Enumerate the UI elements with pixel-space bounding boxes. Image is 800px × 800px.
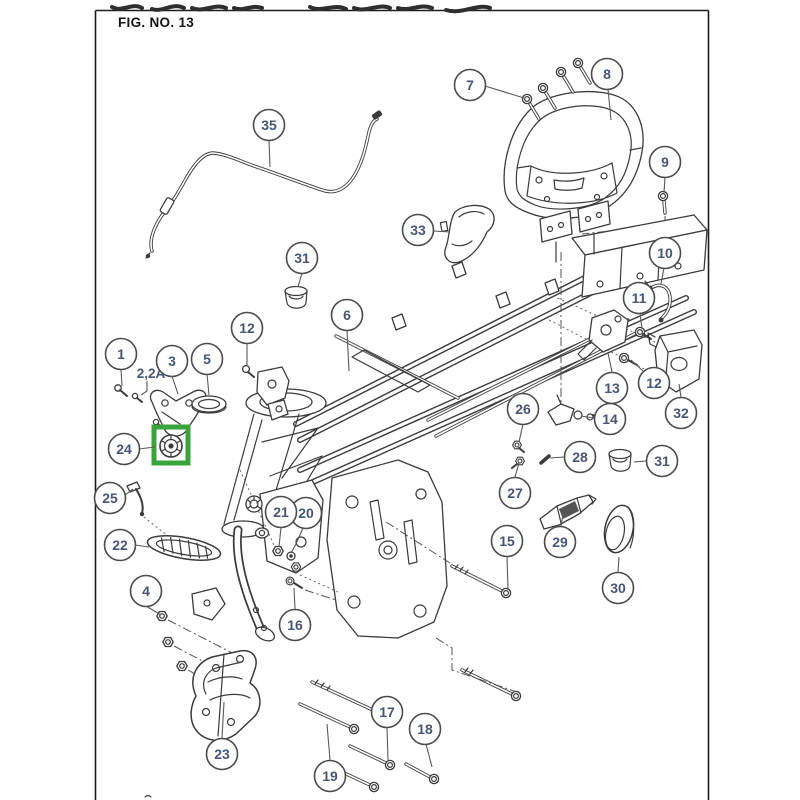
callout-number-31: 31 xyxy=(654,453,670,469)
callout-number-16: 16 xyxy=(287,617,303,633)
leader-line-12 xyxy=(631,360,643,371)
part-29-wedge-drawing xyxy=(540,495,596,529)
callout-number-35: 35 xyxy=(261,117,277,133)
callout-18[interactable]: 18 xyxy=(410,714,441,745)
callout-28[interactable]: 28 xyxy=(565,442,596,473)
leader-line-16 xyxy=(294,588,295,609)
cut-text-fragment xyxy=(145,796,151,798)
callout-number-23: 23 xyxy=(214,746,230,762)
leader-line-35 xyxy=(269,140,270,167)
part-33-bracket-drawing xyxy=(440,205,494,262)
callout-21[interactable]: 21 xyxy=(266,497,297,528)
callout-number-22: 22 xyxy=(112,537,128,553)
callout-19[interactable]: 19 xyxy=(315,761,346,792)
leader-line-1 xyxy=(121,369,122,386)
callout-number-18: 18 xyxy=(417,721,433,737)
leader-line-9 xyxy=(664,177,665,193)
callout-number-15: 15 xyxy=(499,533,515,549)
callout-16[interactable]: 16 xyxy=(280,610,311,641)
callout-10[interactable]: 10 xyxy=(650,238,681,269)
callout-6[interactable]: 6 xyxy=(332,300,363,331)
leader-line-26 xyxy=(519,424,523,442)
callout-3[interactable]: 3 xyxy=(157,346,188,377)
part-22-pad-drawing xyxy=(146,531,223,565)
leader-line-19 xyxy=(327,724,330,760)
callout-number-28: 28 xyxy=(572,449,588,465)
callout-31[interactable]: 31 xyxy=(287,243,318,274)
callout-number-21: 21 xyxy=(273,504,289,520)
callout-22[interactable]: 22 xyxy=(105,530,136,561)
leader-line-30 xyxy=(618,557,619,572)
callout-number-6: 6 xyxy=(343,307,351,323)
callout-7[interactable]: 7 xyxy=(455,70,486,101)
callout-12[interactable]: 12 xyxy=(639,368,670,399)
leader-line-13 xyxy=(608,353,612,372)
leader-line-31 xyxy=(634,461,646,462)
callout-25[interactable]: 25 xyxy=(95,483,126,514)
callout-number-25: 25 xyxy=(102,490,118,506)
callout-number-13: 13 xyxy=(604,380,620,396)
callout-number-1: 1 xyxy=(117,346,125,362)
leader-line-28 xyxy=(550,457,564,458)
leader-line-15 xyxy=(507,556,508,590)
part-23-guard-drawing xyxy=(191,651,260,741)
callout-29[interactable]: 29 xyxy=(545,527,576,558)
part-31-cap-right-drawing xyxy=(609,450,631,472)
callout-number-24: 24 xyxy=(116,441,132,457)
callout-4[interactable]: 4 xyxy=(131,576,162,607)
part-8-rear-carrier-drawing xyxy=(504,92,643,219)
callout-number-30: 30 xyxy=(610,580,626,596)
cable-adjuster xyxy=(160,197,175,215)
leader-line-4 xyxy=(146,606,161,615)
callout-number-27: 27 xyxy=(507,485,523,501)
leader-line-18 xyxy=(426,744,432,767)
callout-11[interactable]: 11 xyxy=(624,283,655,314)
parts-diagram-page: FIG. NO. 13 xyxy=(0,0,800,800)
leader-line-7 xyxy=(485,86,524,98)
part-31-cap-left-drawing xyxy=(285,287,307,309)
leader-line-6 xyxy=(347,330,349,371)
part-28-pin xyxy=(541,456,549,463)
callout-number-12: 12 xyxy=(646,375,662,391)
callout-number-4: 4 xyxy=(142,583,150,599)
callout-number-31: 31 xyxy=(294,250,310,266)
callout-14[interactable]: 14 xyxy=(595,404,626,435)
callout-15[interactable]: 15 xyxy=(492,526,523,557)
callout-33[interactable]: 33 xyxy=(403,215,434,246)
figure-title: FIG. NO. 13 xyxy=(118,15,194,30)
part-26-27-28-fasteners-drawing xyxy=(512,441,549,468)
callout-32[interactable]: 32 xyxy=(666,398,697,429)
callout-number-5: 5 xyxy=(203,351,211,367)
callout-26[interactable]: 26 xyxy=(508,394,539,425)
callout-number-11: 11 xyxy=(632,290,647,306)
part-24-grommet-drawing xyxy=(160,435,182,457)
part-13-bracket-drawing xyxy=(578,310,628,360)
part-30-ring-drawing xyxy=(600,503,637,556)
callout-35[interactable]: 35 xyxy=(254,110,285,141)
leader-line-17 xyxy=(387,727,388,760)
callout-number-29: 29 xyxy=(552,534,568,550)
callout-number-12: 12 xyxy=(239,320,255,336)
callout-number-3: 3 xyxy=(168,353,176,369)
callout-30[interactable]: 30 xyxy=(603,573,634,604)
leader-line-5 xyxy=(207,374,209,395)
leader-line-3 xyxy=(172,376,178,394)
callout-8[interactable]: 8 xyxy=(592,59,623,90)
callout-number-17: 17 xyxy=(379,704,395,720)
callout-13[interactable]: 13 xyxy=(597,373,628,404)
callout-number-33: 33 xyxy=(410,222,426,238)
callout-number-7: 7 xyxy=(466,77,474,93)
callout-number-32: 32 xyxy=(673,405,689,421)
callout-number-9: 9 xyxy=(661,154,669,170)
callout-23[interactable]: 23 xyxy=(207,739,238,770)
callout-1[interactable]: 1 xyxy=(106,339,137,370)
callout-number-10: 10 xyxy=(657,245,673,261)
callout-24[interactable]: 24 xyxy=(109,434,140,465)
callout-9[interactable]: 9 xyxy=(650,147,681,178)
callout-12[interactable]: 12 xyxy=(232,313,263,344)
diagram-canvas: FIG. NO. 13 xyxy=(0,0,800,800)
callout-17[interactable]: 17 xyxy=(372,697,403,728)
callout-number-26: 26 xyxy=(515,401,531,417)
callout-31[interactable]: 31 xyxy=(647,446,678,477)
callout-5[interactable]: 5 xyxy=(192,344,223,375)
callout-number-8: 8 xyxy=(603,66,611,82)
callout-number-14: 14 xyxy=(602,411,618,427)
callout-number-19: 19 xyxy=(322,768,338,784)
leader-line-31 xyxy=(298,273,302,287)
callout-27[interactable]: 27 xyxy=(500,478,531,509)
leader-line-22 xyxy=(135,545,149,547)
leader-line-33 xyxy=(433,231,450,232)
callout-number-20: 20 xyxy=(298,505,314,521)
